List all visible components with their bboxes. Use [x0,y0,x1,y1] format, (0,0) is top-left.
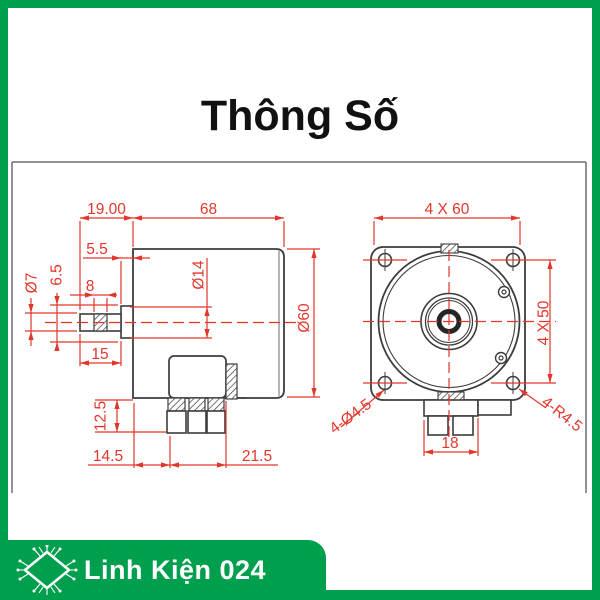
product-image: Thông Số [0,0,600,600]
terminal-block [169,356,226,398]
brand-name: Linh Kiện 024 [84,555,266,586]
dim-12-5: 12.5 [93,401,110,431]
dim-68: 68 [200,201,217,218]
brand-banner: Linh Kiện 024 [0,540,326,600]
dim-19: 19.00 [87,201,126,218]
chip-logo-icon [16,545,78,595]
dim-5-5: 5.5 [86,241,108,258]
dim-4x60: 4 X 60 [425,201,470,218]
connector-base [424,400,478,416]
side-view [80,249,284,433]
dim-8: 8 [86,278,95,295]
front-view [371,244,525,435]
dim-4x50: 4 X 50 [536,300,553,345]
dim-21-5: 21.5 [242,448,272,465]
dim-dia14: Ø14 [191,260,208,290]
dim-18: 18 [441,435,458,452]
dim-14-5: 14.5 [93,448,123,465]
technical-drawing: 19.00 68 5.5 8 15 Ø7 6.5 Ø14 Ø60 12.5 14… [0,0,600,600]
label-4-r4-5: 4-R4.5 [538,393,585,435]
dim-15: 15 [91,346,108,363]
dim-6-5: 6.5 [49,264,66,286]
label-4-dia4-5: 4-Ø4.5 [327,396,375,438]
dim-dia7: Ø7 [24,273,41,294]
grommet [226,364,237,399]
dim-dia60: Ø60 [296,303,313,333]
